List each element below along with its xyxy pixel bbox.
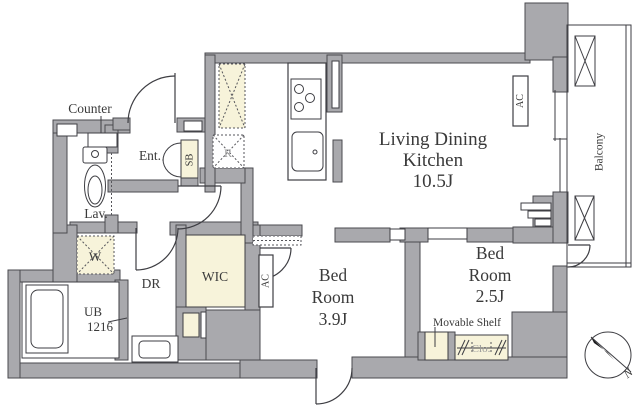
lavatory-label: Lav. [84,206,108,221]
wall-ent-bottom [108,180,178,192]
wall-lav-left [53,120,67,233]
washer-label: W [89,249,102,264]
wall-ent-top-left [113,118,130,130]
wall-bottom-center [240,360,317,378]
shoebox-door-top [163,143,181,161]
movable-shelf-label: Movable Shelf [433,317,501,329]
pipe-space-bar [201,312,206,338]
meter-box [184,121,202,131]
bedroom1-label-line2: Room [312,287,355,307]
wall-closet-stub [448,332,455,360]
wall-balcony-upper [553,57,568,92]
wall-bed1-bottom-left [206,310,260,360]
wall-bottom-left [8,363,240,378]
unit-bath-label-line1: UB [84,304,102,319]
washbasin-bowl [139,341,170,358]
compass-north-label: N [620,364,637,381]
wall-bed1-top-right [335,228,390,242]
bedroom2-balcony-door-swing [568,245,590,267]
shoebox-door-bottom [163,159,181,177]
wall-bed2-top-corner [513,227,553,243]
duct-step-3 [535,219,551,226]
bedroom2-label-line2: Room [469,265,512,285]
bedroom1-outer-door-swing [316,368,352,404]
wall-kitchen-left [205,55,215,192]
wall-left-outer [8,270,20,378]
balcony-label: Balcony [594,133,606,172]
lavatory-window [57,124,77,136]
floorplan-page: Counter Ent. SB R Living Dining Kitchen … [0,0,640,408]
bedroom1-label-line1: Bed [319,265,347,285]
floorplan-svg: Counter Ent. SB R Living Dining Kitchen … [0,0,640,408]
closet-label: Clo. [472,343,491,355]
duct-step-2 [528,211,551,218]
wall-bed2-bottom-right [512,312,567,360]
entrance-door-swing [128,76,175,123]
ac-ldk-label: AC [515,94,526,108]
sink-basin [292,132,323,171]
wall-bed2-top [467,228,513,242]
wall-balcony-lower [553,192,568,243]
toilet-bowl [85,165,106,207]
ldk-label-line2: Kitchen [403,150,464,171]
shoebox-label: SB [184,154,195,167]
ac-bedroom-label: AC [260,274,271,288]
wic-label: WIC [202,269,228,284]
bedroom2-label-line3: 2.5J [476,286,505,306]
toilet-counter-box [88,133,117,147]
bed2-top-window [428,228,467,239]
pipe-space-box [183,313,199,337]
counter-label: Counter [68,101,112,116]
refrigerator-label: R [224,146,232,160]
ldk-label-line3: 10.5J [413,171,454,192]
movable-shelf-box [425,332,448,360]
wall-shelf-stub [418,332,425,360]
bedroom1-label-line3: 3.9J [319,309,348,329]
toilet-tank [83,147,107,163]
compass-needle [591,337,614,360]
dressing-room-label: DR [142,276,161,291]
pantry-area [219,64,245,128]
duct-step-1 [521,203,551,210]
bedroom2-label-line1: Bed [476,243,504,263]
wall-left-filler [53,225,77,282]
bed1-top-opening [390,229,405,240]
stove-icon [291,79,321,119]
wall-counter-right-lower [333,140,342,182]
wall-dr-top [70,222,137,233]
wall-below-shoebox [181,178,198,186]
kitchen-hanging-wall [332,61,339,108]
ldk-label-line1: Living Dining [379,129,488,150]
sink-icon [292,132,323,171]
bathtub-inner [31,290,63,348]
wall-top [205,53,530,63]
wall-bed2-right [553,266,567,312]
wall-top-right-column [525,3,568,60]
washbasin-icon [132,336,178,362]
entrance-label: Ent. [139,148,161,163]
unit-bath-label-line2: 1216 [87,319,114,334]
pillar-icon [575,36,595,240]
